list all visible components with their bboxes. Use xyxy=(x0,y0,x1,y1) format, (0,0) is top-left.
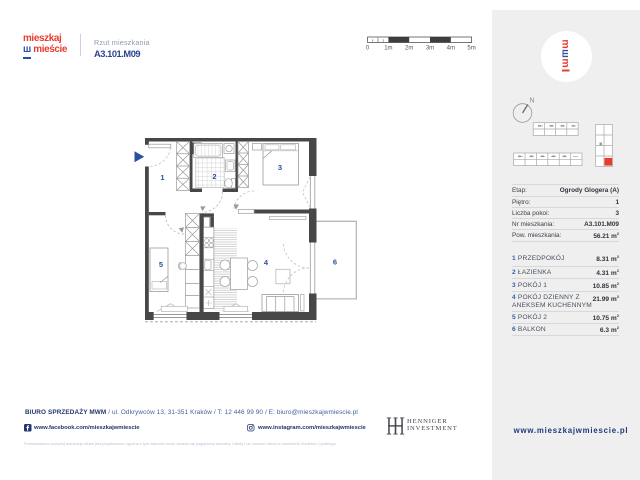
svg-text:2: 2 xyxy=(212,172,216,181)
svg-text:m: m xyxy=(560,39,572,48)
svg-text:6: 6 xyxy=(333,258,337,267)
svg-text:N: N xyxy=(530,98,535,105)
svg-text:3: 3 xyxy=(278,163,282,172)
svg-text:ш: ш xyxy=(560,49,572,58)
svg-text:4: 4 xyxy=(264,258,269,267)
svg-text:1: 1 xyxy=(160,173,164,182)
svg-text:5: 5 xyxy=(159,260,163,269)
svg-text:m: m xyxy=(560,58,572,67)
